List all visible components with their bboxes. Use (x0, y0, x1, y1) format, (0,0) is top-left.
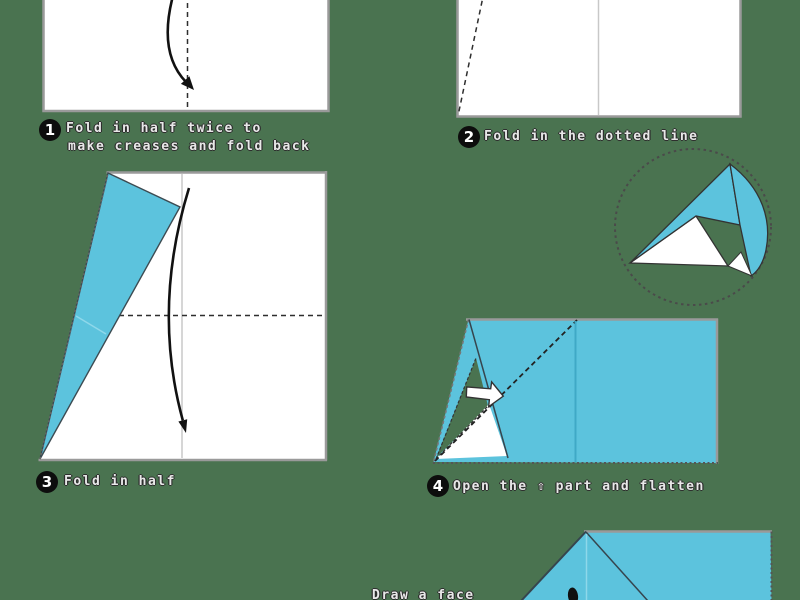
step3-number-badge: 3 (36, 471, 58, 493)
step1-caption-line1: Fold in half twice to (66, 121, 262, 136)
step4-number-badge: 4 (427, 475, 449, 497)
step5-paper (521, 532, 772, 600)
step2-diagram (458, 0, 741, 117)
step1-caption-line2: make creases and fold back (68, 139, 311, 154)
step1-paper-square (44, 0, 329, 111)
step4-diagram (433, 319, 718, 465)
step5-diagram (521, 532, 772, 600)
origami-instruction-sheet: 1 Fold in half twice to make creases and… (0, 0, 800, 600)
step1-number-badge: 1 (39, 119, 61, 141)
step1-diagram (44, 0, 329, 111)
step3-caption: Fold in half (64, 474, 176, 489)
step3-diagram (39, 171, 328, 461)
step4-caption: Open the ⇧ part and flatten (453, 479, 705, 494)
detail-circle (615, 149, 771, 305)
step2-number-badge: 2 (458, 126, 480, 148)
step2-caption: Fold in the dotted line (484, 129, 699, 144)
origami-diagram-canvas (0, 0, 800, 600)
step5-caption-draw-face: Draw a face (372, 588, 475, 600)
